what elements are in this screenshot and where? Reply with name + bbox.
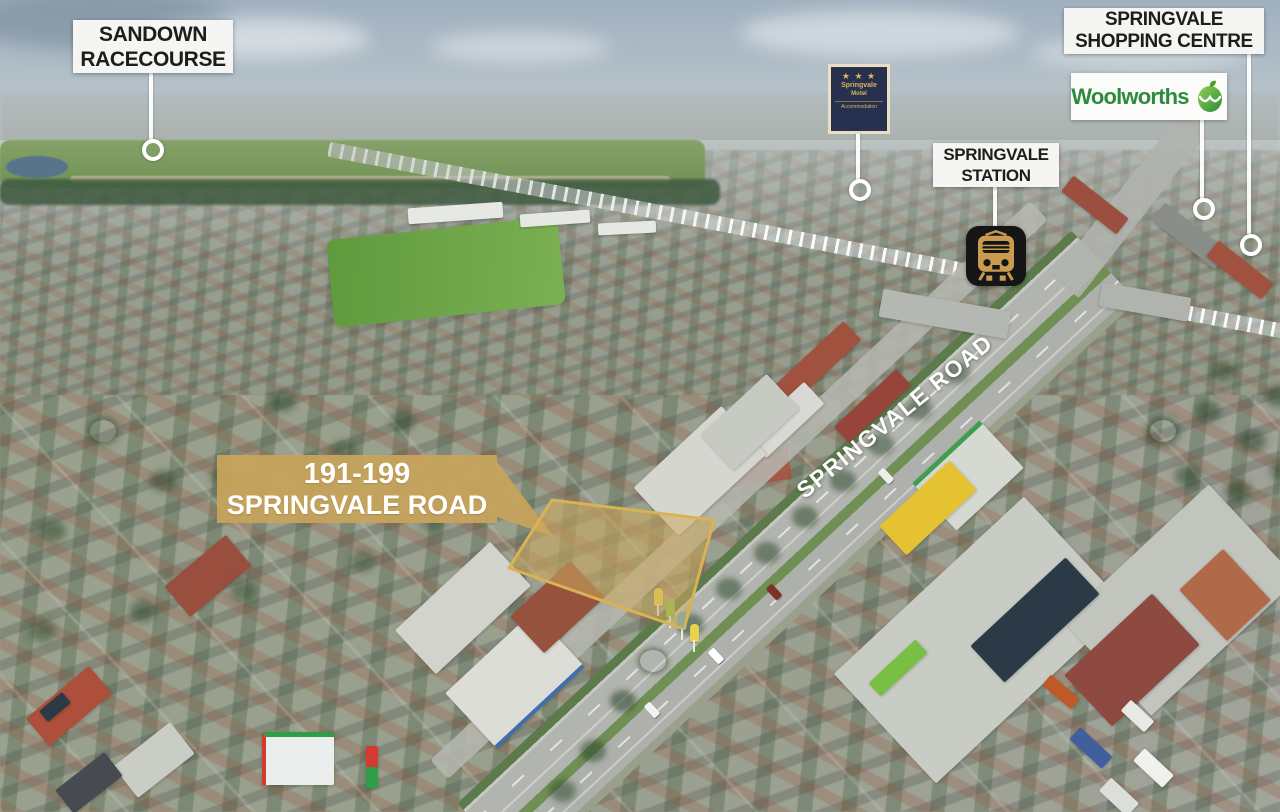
train-icon bbox=[966, 226, 1026, 286]
woolworths-apple-icon bbox=[1193, 79, 1227, 115]
address-number: 191-199 bbox=[217, 459, 497, 490]
motel-tagline: Accommodation bbox=[835, 101, 883, 112]
label-line: STATION bbox=[933, 165, 1059, 186]
train-station-icon bbox=[966, 226, 1026, 286]
aerial-property-photo: SANDOWN RACECOURSE SPRINGVALE STATION SP… bbox=[0, 0, 1280, 812]
location-ring-woolworths bbox=[1193, 198, 1215, 220]
leader-line-shopping-centre bbox=[1247, 52, 1251, 234]
location-ring-shopping-centre bbox=[1240, 234, 1262, 256]
label-line: SANDOWN bbox=[73, 22, 233, 47]
address-street: SPRINGVALE ROAD bbox=[217, 490, 497, 520]
site-overlay bbox=[0, 0, 1280, 812]
location-ring-motel bbox=[849, 179, 871, 201]
label-line: SPRINGVALE bbox=[1064, 9, 1264, 31]
motel-sign: ★ ★ ★ Springvale Motel Accommodation bbox=[828, 64, 890, 134]
label-line: SPRINGVALE bbox=[933, 144, 1059, 165]
property-address-label: 191-199 SPRINGVALE ROAD bbox=[217, 455, 497, 523]
leader-line-motel bbox=[856, 132, 860, 180]
star-rating-icon: ★ ★ ★ bbox=[831, 70, 887, 82]
property-boundary bbox=[509, 500, 714, 629]
woolworths-wordmark: Woolworths bbox=[1071, 84, 1188, 110]
label-springvale-shopping-centre: SPRINGVALE SHOPPING CENTRE bbox=[1064, 8, 1264, 54]
leader-line-sandown bbox=[149, 72, 153, 140]
woolworths-badge: Woolworths bbox=[1071, 73, 1227, 120]
motel-name-line: Motel bbox=[831, 90, 887, 98]
label-line: SHOPPING CENTRE bbox=[1064, 31, 1264, 53]
label-sandown-racecourse: SANDOWN RACECOURSE bbox=[73, 20, 233, 73]
label-springvale-station: SPRINGVALE STATION bbox=[933, 143, 1059, 187]
label-line: RACECOURSE bbox=[73, 47, 233, 72]
leader-line-woolworths bbox=[1200, 119, 1204, 199]
leader-line-station bbox=[993, 186, 997, 228]
location-ring-sandown bbox=[142, 139, 164, 161]
motel-name-line: Springvale bbox=[831, 82, 887, 90]
